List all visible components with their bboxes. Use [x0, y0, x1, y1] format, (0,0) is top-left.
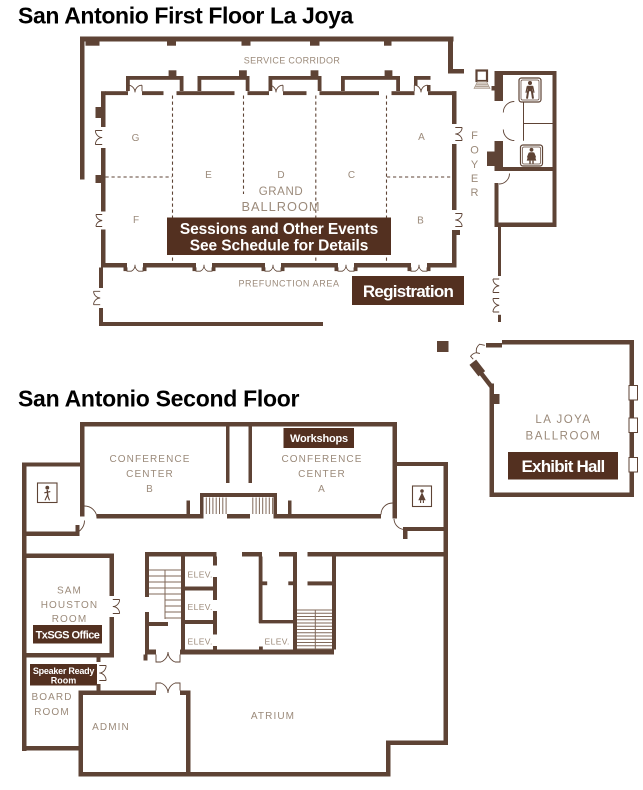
- svg-text:ROOM: ROOM: [34, 707, 70, 718]
- svg-text:C: C: [348, 170, 356, 181]
- svg-text:SAM: SAM: [57, 586, 82, 597]
- svg-text:San Antonio First Floor La Joy: San Antonio First Floor La Joya: [18, 3, 354, 29]
- svg-text:ROOM: ROOM: [52, 614, 88, 625]
- svg-text:LA JOYA: LA JOYA: [535, 414, 591, 426]
- svg-text:BALLROOM: BALLROOM: [241, 199, 320, 214]
- svg-text:ADMIN: ADMIN: [92, 722, 130, 733]
- svg-text:G: G: [132, 133, 141, 144]
- svg-text:Sessions and Other Events: Sessions and Other Events: [180, 221, 378, 238]
- svg-text:R: R: [471, 187, 479, 199]
- svg-text:TxSGS Office: TxSGS Office: [36, 630, 100, 642]
- svg-text:Workshops: Workshops: [290, 433, 348, 445]
- svg-text:Room: Room: [51, 675, 77, 685]
- svg-text:F: F: [133, 215, 140, 226]
- svg-text:Speaker Ready: Speaker Ready: [33, 666, 95, 676]
- svg-text:ELEV.: ELEV.: [265, 637, 290, 647]
- svg-text:CONFERENCE: CONFERENCE: [281, 454, 362, 465]
- svg-text:BALLROOM: BALLROOM: [526, 431, 602, 443]
- svg-text:D: D: [277, 170, 285, 181]
- svg-text:ELEV.: ELEV.: [188, 637, 213, 647]
- svg-text:ATRIUM: ATRIUM: [251, 711, 295, 722]
- svg-text:Exhibit Hall: Exhibit Hall: [522, 457, 605, 476]
- svg-text:HOUSTON: HOUSTON: [41, 600, 99, 611]
- svg-text:Registration: Registration: [363, 282, 454, 301]
- svg-text:A: A: [418, 132, 426, 143]
- svg-text:ELEV.: ELEV.: [188, 570, 213, 580]
- svg-text:ELEV.: ELEV.: [188, 602, 213, 612]
- svg-text:Y: Y: [471, 159, 479, 171]
- svg-text:E: E: [205, 170, 213, 181]
- svg-text:O: O: [470, 145, 479, 157]
- svg-text:See Schedule for Details: See Schedule for Details: [190, 238, 369, 255]
- svg-text:CENTER: CENTER: [126, 469, 174, 480]
- svg-text:San Antonio Second Floor: San Antonio Second Floor: [18, 385, 300, 411]
- svg-text:F: F: [471, 130, 478, 142]
- svg-text:CENTER: CENTER: [298, 469, 346, 480]
- svg-text:PREFUNCTION AREA: PREFUNCTION AREA: [238, 279, 339, 289]
- svg-text:B: B: [146, 484, 154, 495]
- svg-text:BOARD: BOARD: [31, 692, 72, 703]
- svg-text:CONFERENCE: CONFERENCE: [109, 454, 190, 465]
- svg-text:GRAND: GRAND: [259, 186, 304, 198]
- svg-text:B: B: [417, 216, 425, 227]
- svg-text:SERVICE CORRIDOR: SERVICE CORRIDOR: [244, 56, 341, 66]
- svg-text:A: A: [318, 484, 326, 495]
- svg-text:E: E: [471, 173, 478, 185]
